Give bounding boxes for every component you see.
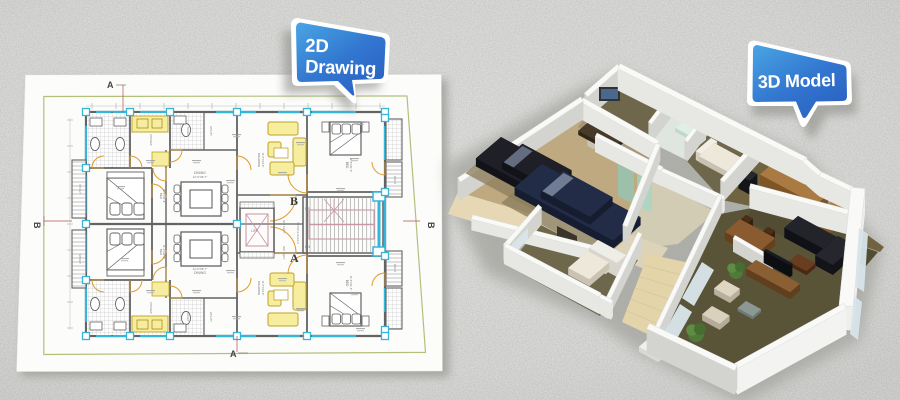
svg-text:DRAWING: DRAWING xyxy=(257,281,261,296)
svg-text:BED: BED xyxy=(345,280,349,287)
svg-text:SIT OUT: SIT OUT xyxy=(78,254,81,264)
svg-text:TOILET: TOILET xyxy=(186,312,190,321)
svg-text:12'-6"X8'-7": 12'-6"X8'-7" xyxy=(193,175,208,179)
svg-text:600 SQFT: 600 SQFT xyxy=(282,220,286,234)
svg-text:A: A xyxy=(290,251,299,265)
svg-text:600 SQFT: 600 SQFT xyxy=(282,246,286,260)
svg-text:DINING: DINING xyxy=(194,271,206,275)
svg-text:BED: BED xyxy=(345,162,349,169)
svg-text:UTILITY: UTILITY xyxy=(209,126,213,136)
svg-text:12'-6"X8'-7": 12'-6"X8'-7" xyxy=(193,267,208,271)
svg-text:TOILET: TOILET xyxy=(186,126,190,135)
svg-text:SIT OUT: SIT OUT xyxy=(78,184,81,194)
svg-text:11'-6"X11'-6": 11'-6"X11'-6" xyxy=(349,276,353,291)
svg-text:A: A xyxy=(230,349,237,359)
svg-text:DRAWING: DRAWING xyxy=(257,153,261,168)
svg-text:KITCHEN: KITCHEN xyxy=(149,134,153,146)
svg-text:A: A xyxy=(107,80,114,90)
svg-text:B: B xyxy=(290,194,298,208)
svg-text:11'-0"X11'-6": 11'-0"X11'-6" xyxy=(162,189,165,203)
svg-text:11'-0"X11'-6": 11'-0"X11'-6" xyxy=(162,245,165,259)
svg-text:3D Model: 3D Model xyxy=(758,70,836,92)
svg-text:UP: UP xyxy=(305,207,310,211)
svg-text:SITOUT: SITOUT xyxy=(393,264,396,273)
svg-text:STAIR 9-0X16-0: STAIR 9-0X16-0 xyxy=(296,222,300,244)
svg-text:UTILITY: UTILITY xyxy=(209,312,213,322)
svg-text:DN: DN xyxy=(305,245,310,249)
svg-text:B: B xyxy=(32,222,42,229)
svg-text:KITCHEN: KITCHEN xyxy=(149,302,153,314)
svg-text:Drawing: Drawing xyxy=(305,56,377,79)
svg-text:11'-0"X14'-6": 11'-0"X14'-6" xyxy=(261,281,265,296)
svg-text:2D: 2D xyxy=(305,35,329,57)
svg-text:B: B xyxy=(426,222,436,229)
svg-text:SITOUT: SITOUT xyxy=(393,176,396,185)
svg-text:11'-0"X14'-6": 11'-0"X14'-6" xyxy=(261,153,265,168)
svg-text:LIFT: LIFT xyxy=(251,229,258,233)
svg-text:11'-6"X11'-6": 11'-6"X11'-6" xyxy=(349,158,353,173)
